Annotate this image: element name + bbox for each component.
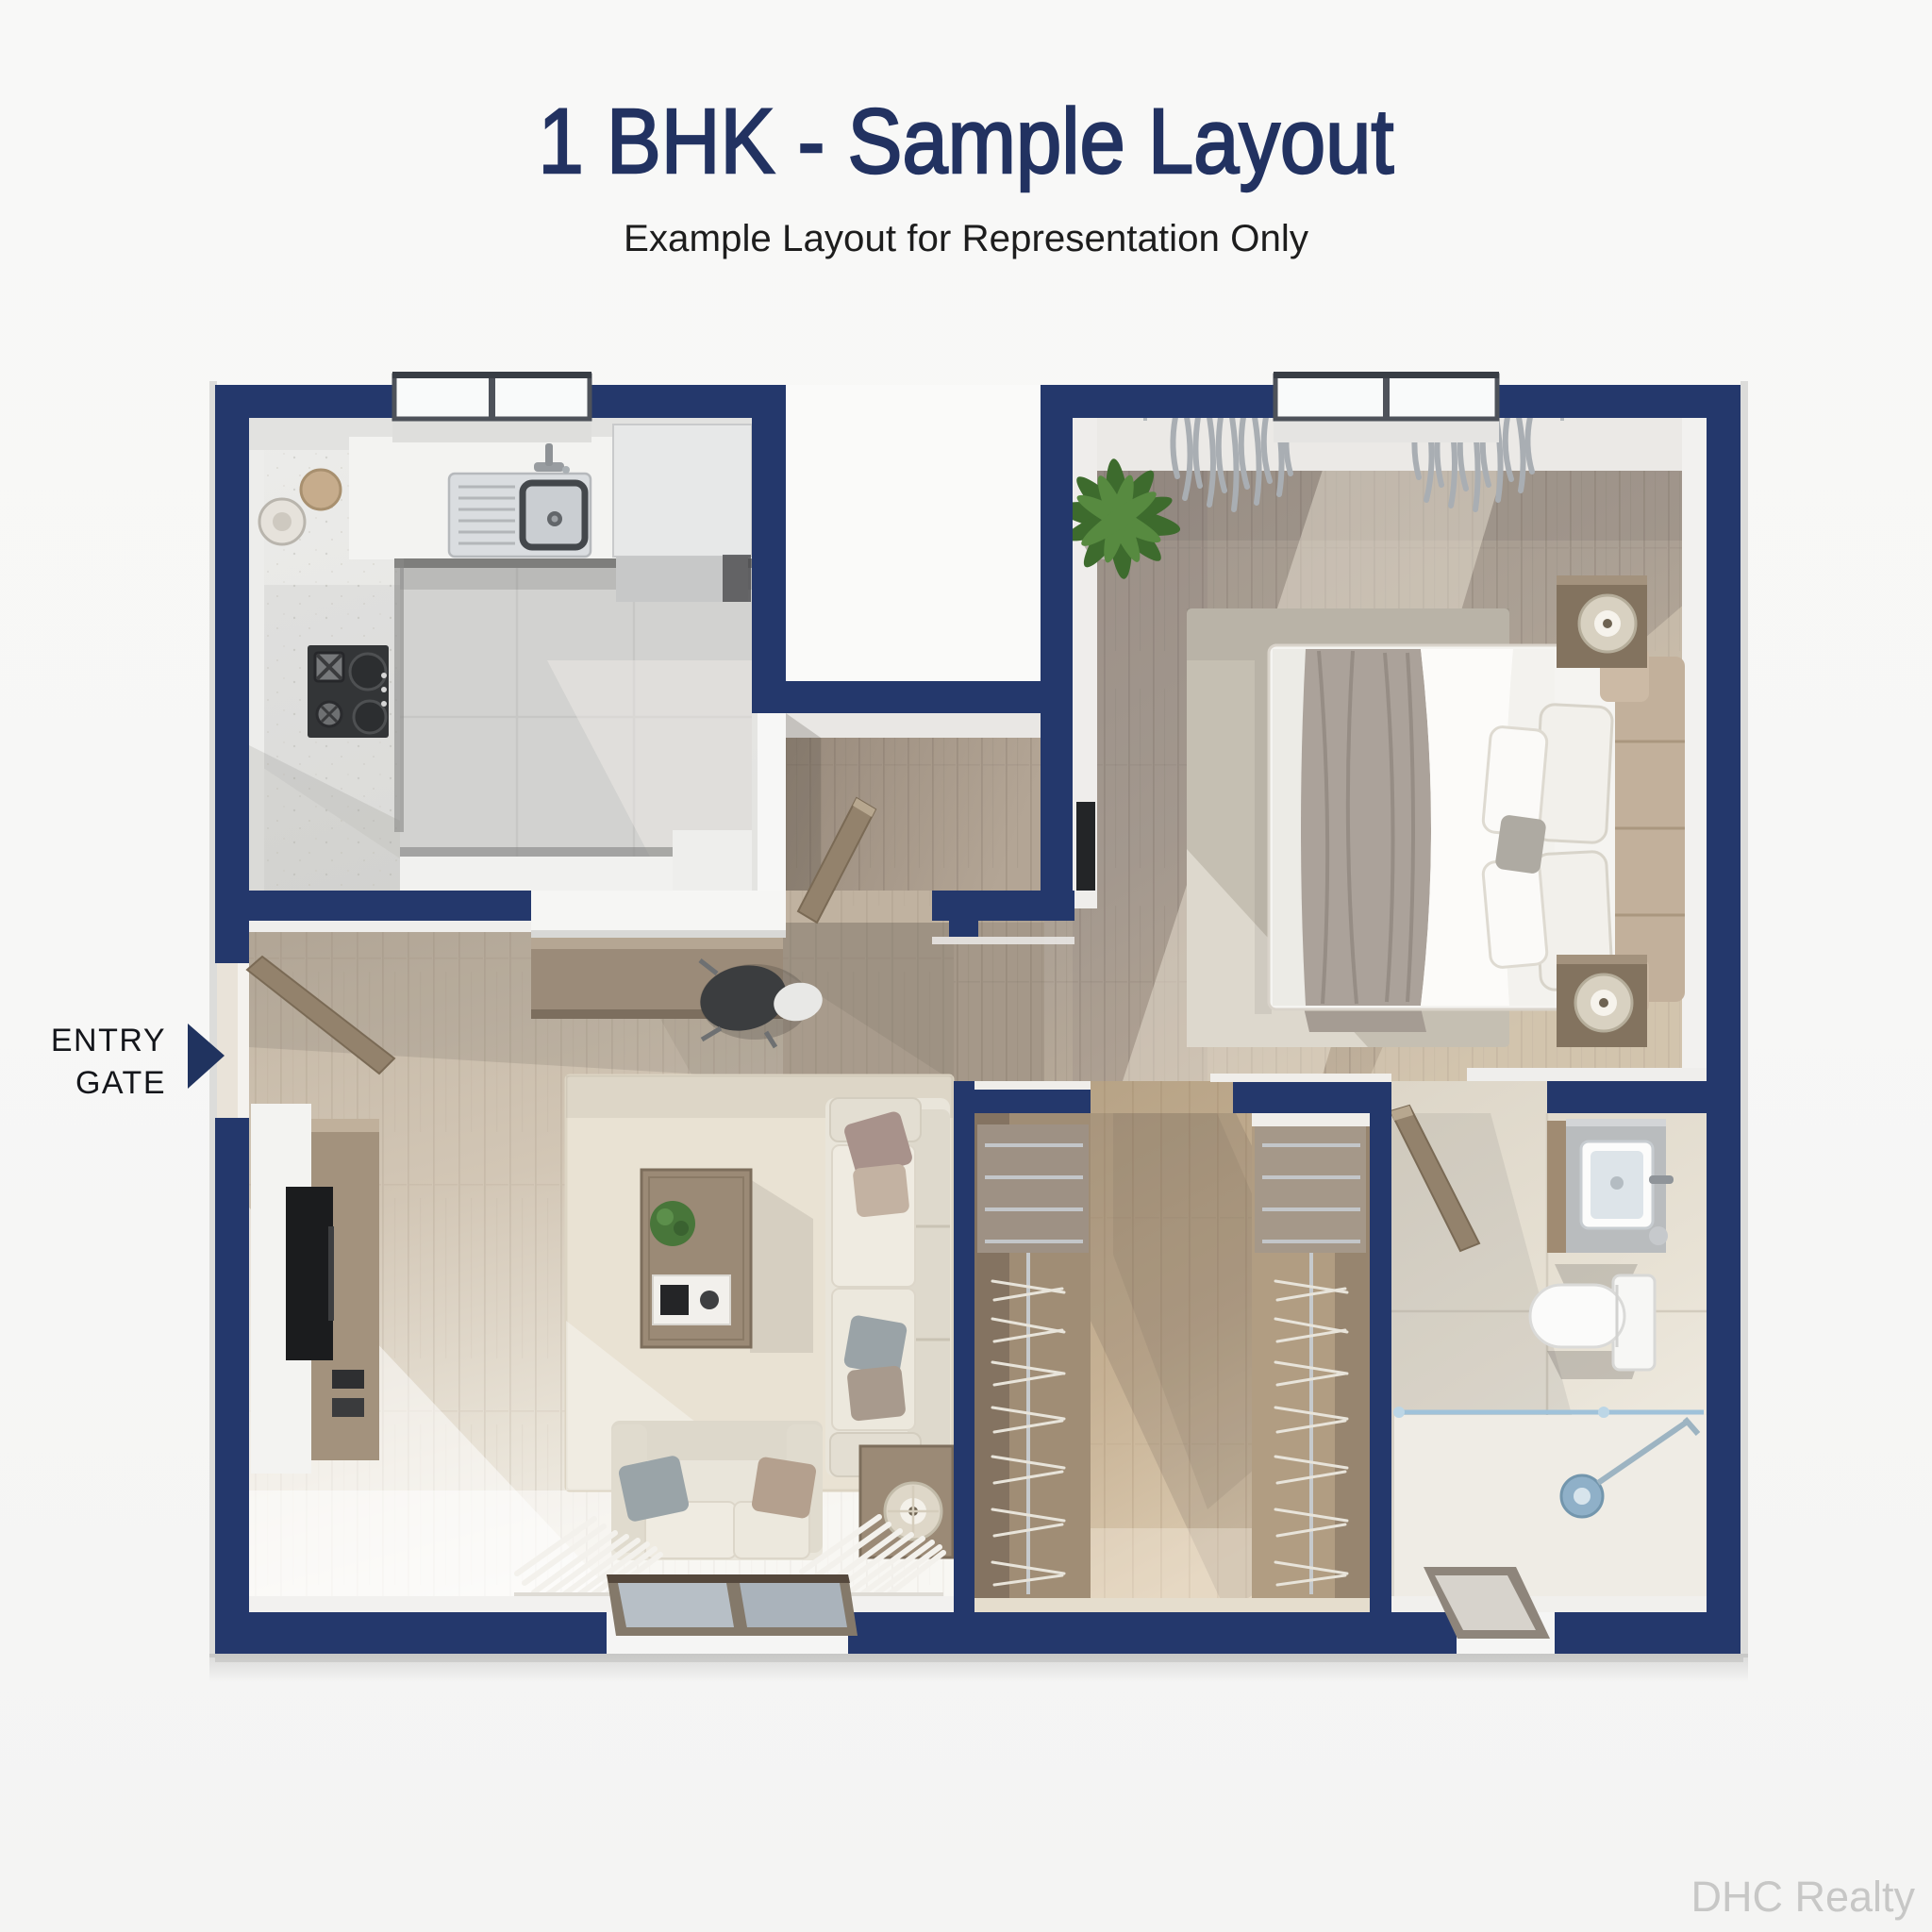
svg-text:1 BHK - Sample Layout: 1 BHK - Sample Layout — [539, 90, 1394, 192]
svg-text:ENTRY: ENTRY — [51, 1023, 166, 1058]
svg-text:DHC Realty: DHC Realty — [1690, 1873, 1915, 1921]
svg-text:GATE: GATE — [75, 1065, 166, 1101]
svg-text:Example Layout for Representat: Example Layout for Representation Only — [624, 218, 1308, 259]
